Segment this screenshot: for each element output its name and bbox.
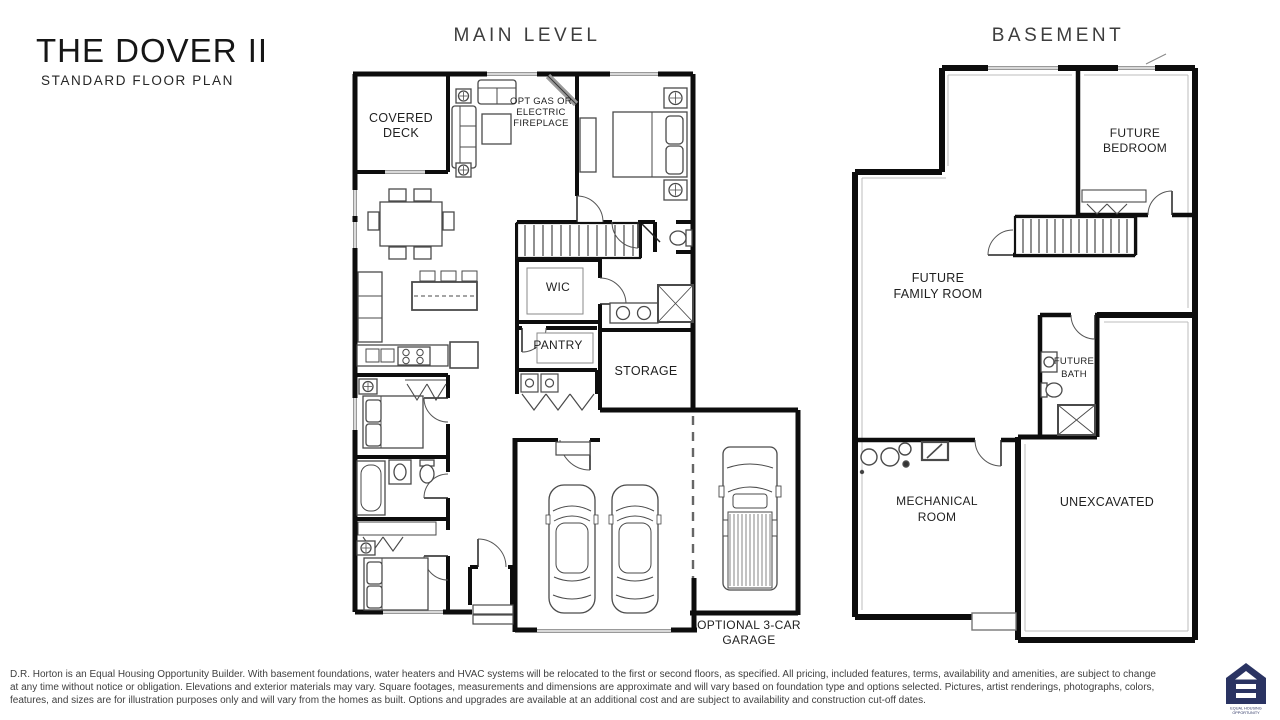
great-room-furniture	[452, 80, 516, 177]
fireplace-label-line3: FIREPLACE	[513, 118, 569, 129]
future-family-room-label-line1: FUTURE	[912, 271, 965, 285]
eho-logo-text-line1: EQUAL HOUSING	[1230, 707, 1262, 711]
wic-label: WIC	[546, 280, 570, 294]
primary-bedroom-furniture	[580, 88, 687, 200]
main-stairs	[517, 223, 640, 258]
mechanical-room-label-line1: MECHANICAL	[896, 494, 978, 508]
floor-plan-sheet: THE DOVER II STANDARD FLOOR PLAN MAIN LE…	[0, 0, 1280, 720]
basement-floor-plan: FUTURE BEDROOM FUTURE FAMILY ROOM FUTURE…	[845, 50, 1205, 660]
main-level-heading: MAIN LEVEL	[397, 25, 657, 47]
pickup-truck	[719, 447, 781, 590]
bedroom3-furniture	[357, 522, 436, 610]
storage-label: STORAGE	[615, 364, 678, 378]
disclaimer-line2: at any time without notice or obligation…	[10, 682, 1222, 695]
dining-furniture	[368, 189, 454, 259]
kitchen-fixtures	[357, 271, 478, 368]
mechanical-room-label-line2: ROOM	[918, 510, 957, 524]
optional-garage-label-line1: OPTIONAL 3-CAR	[697, 618, 801, 632]
bedroom2-furniture	[359, 379, 446, 448]
optional-garage-label-line2: GARAGE	[722, 633, 775, 647]
page-title: THE DOVER II	[36, 32, 268, 70]
equal-housing-opportunity-logo: EQUAL HOUSING OPPORTUNITY	[1226, 662, 1266, 716]
fireplace-label-line1: OPT GAS OR	[510, 96, 572, 107]
eho-logo-text-line2: OPPORTUNITY	[1232, 711, 1260, 715]
disclaimer: D.R. Horton is an Equal Housing Opportun…	[10, 669, 1222, 708]
basement-stairs	[1015, 217, 1135, 255]
hall-bath-fixtures	[357, 460, 434, 515]
future-bath-label-line1: FUTURE	[1054, 356, 1094, 367]
basement-bedroom-closet	[1082, 190, 1146, 214]
basement-inner-wall-faces	[862, 75, 1188, 631]
future-bedroom-label-line1: FUTURE	[1110, 126, 1160, 140]
future-bedroom-label-line2: BEDROOM	[1103, 141, 1167, 155]
disclaimer-line1: D.R. Horton is an Equal Housing Opportun…	[10, 669, 1222, 682]
fireplace-label-line2: ELECTRIC	[516, 107, 565, 118]
pantry-label: PANTRY	[533, 338, 582, 352]
mechanical-equipment	[861, 442, 949, 474]
future-bath-label-line2: BATH	[1061, 369, 1087, 380]
page-subtitle: STANDARD FLOOR PLAN	[41, 73, 234, 88]
garage-cars	[546, 485, 661, 613]
main-level-floor-plan: COVERED DECK OPT GAS OR ELECTRIC FIREPLA…	[340, 55, 810, 670]
disclaimer-line3: features, and sizes are for illustration…	[10, 695, 1222, 708]
unexcavated-label: UNEXCAVATED	[1060, 495, 1154, 509]
covered-deck-label-line2: DECK	[383, 126, 419, 140]
covered-deck-label-line1: COVERED	[369, 111, 433, 125]
future-family-room-label-line2: FAMILY ROOM	[894, 287, 983, 301]
basement-heading: BASEMENT	[938, 25, 1178, 47]
